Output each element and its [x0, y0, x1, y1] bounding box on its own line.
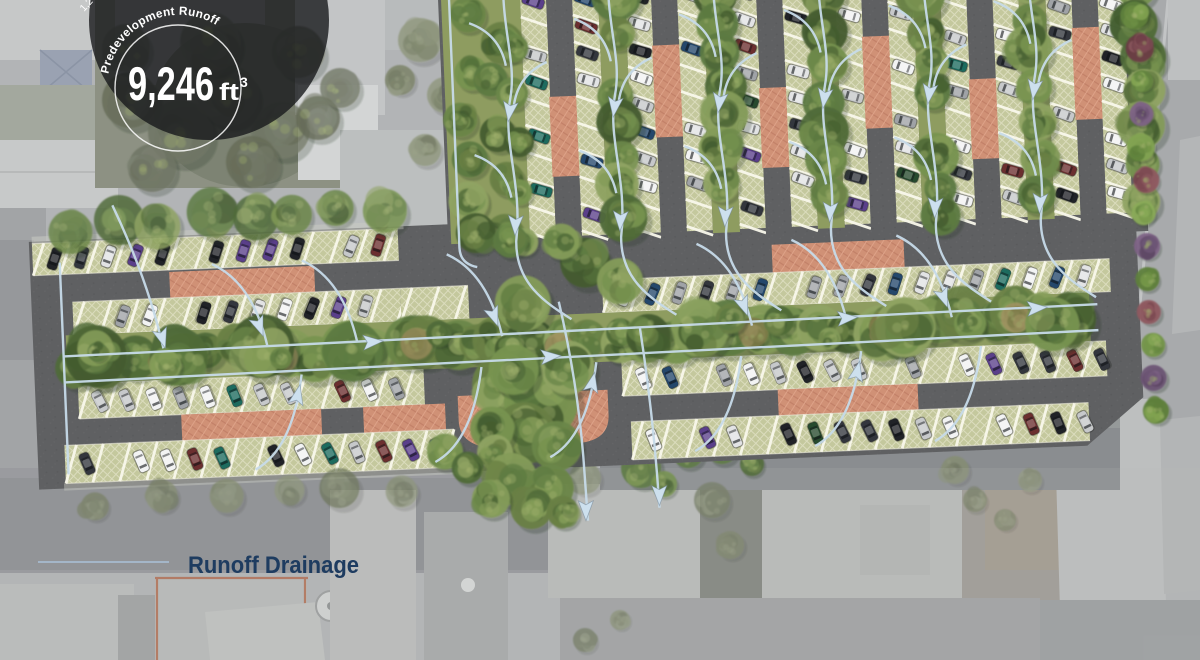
svg-text:ft: ft: [219, 79, 239, 106]
svg-text:3: 3: [240, 74, 248, 90]
svg-text:Runoff Drainage: Runoff Drainage: [188, 552, 359, 579]
svg-text:9,246: 9,246: [128, 57, 214, 110]
